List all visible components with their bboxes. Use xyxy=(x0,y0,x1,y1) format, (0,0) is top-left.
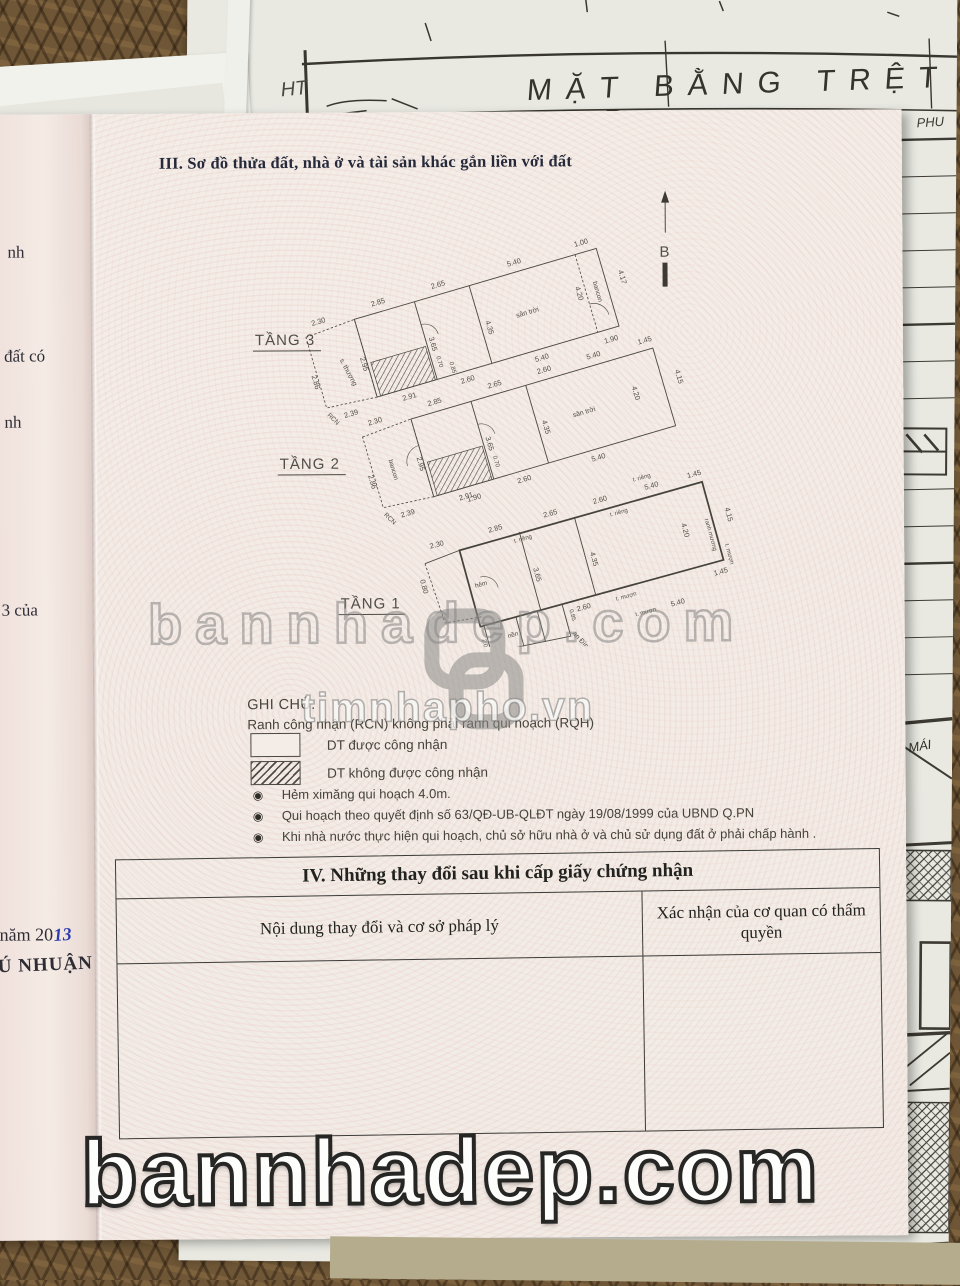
room-label: sân trời xyxy=(515,306,540,319)
legend-swatch-recognized xyxy=(250,733,300,757)
floor-light-strip xyxy=(330,1236,960,1285)
year-handwritten-ink: 13 xyxy=(52,924,72,946)
paper-edge-strip xyxy=(224,0,251,126)
dim-label: 4.35 xyxy=(540,419,553,435)
bullet-icon: ◉ xyxy=(253,809,264,823)
col-header-content: Nội dung thay đổi và cơ sở pháp lý xyxy=(117,892,643,964)
legend-label: DT không được công nhận xyxy=(327,764,488,780)
legend-item-recognized: DT được công nhận xyxy=(250,732,447,757)
dim-label: 2.95 xyxy=(358,356,371,372)
dim-label: 4.20 xyxy=(679,522,691,538)
dim-label: 2.60 xyxy=(459,373,475,386)
dim-label: 2.85 xyxy=(426,396,442,409)
section-iv-table: IV. Những thay đổi sau khi cấp giấy chứn… xyxy=(115,848,884,1139)
blueprint-corner-note: PHU xyxy=(916,114,944,131)
edge-text-fragment: nh xyxy=(7,243,24,263)
legend-swatch-not-recognized xyxy=(251,761,301,785)
edge-text-fragment: nh xyxy=(4,413,21,433)
legend-item-not-recognized: DT không được công nhận xyxy=(251,760,489,785)
dim-label: 1.90 xyxy=(603,333,619,346)
legend-label: DT được công nhận xyxy=(327,737,448,753)
dim-label: 5.40 xyxy=(590,451,606,464)
plan-t3: 2.30 2.85 2.65 5.40 1.00 4.17 4.20 1.90 … xyxy=(294,229,645,431)
dim-label: 1.45 xyxy=(686,468,702,480)
certificate-page: nh đất có nh 3 của năm 2013 Ú NHUẬN III.… xyxy=(0,109,908,1241)
edge-text-fragment: đất có xyxy=(4,346,45,366)
wall-label: t. riêng xyxy=(514,534,533,545)
dim-label: 4.35 xyxy=(483,319,496,335)
alley-label: hẻm xyxy=(474,580,488,590)
dim-label: 2.65 xyxy=(542,507,558,519)
edge-district-fragment: Ú NHUẬN xyxy=(0,953,93,979)
wall-label: ranh mương xyxy=(703,518,718,552)
dim-label: 2.30 xyxy=(310,315,326,328)
dim-label: 4.15 xyxy=(723,506,735,522)
dim-label: 2.30 xyxy=(429,538,445,550)
balcony-label: bancon xyxy=(591,281,604,304)
dim-label: 4.17 xyxy=(616,269,629,285)
dim-label: 5.40 xyxy=(534,351,550,364)
blueprint-hand-note: HT xyxy=(280,77,309,102)
dim-label: 2.85 xyxy=(370,296,386,309)
boundary-label: RCN xyxy=(382,512,397,527)
dim-label: 2.39 xyxy=(343,407,359,420)
room-label: s. thượng xyxy=(338,358,358,388)
empty-cell-confirm xyxy=(642,953,883,1131)
dim-label: 2.30 xyxy=(367,415,383,428)
dim-label: 5.40 xyxy=(506,256,522,269)
dim-label: 2.85 xyxy=(487,522,503,534)
wall-label: t. mượn xyxy=(723,543,734,565)
dim-label: 0.85 xyxy=(448,361,457,374)
north-label: B xyxy=(659,244,670,261)
dim-label: 0.70 xyxy=(434,356,443,369)
dim-label: 4.15 xyxy=(673,368,686,384)
dim-label: 2.86 xyxy=(366,474,379,490)
bullet-icon: ◉ xyxy=(253,788,264,802)
edge-year-fragment: năm 2013 xyxy=(0,924,71,945)
watermark-bottom: bannhadep.com xyxy=(0,1115,908,1228)
legend-note: Hẻm ximăng qui hoạch 4.0m. xyxy=(282,786,451,802)
boundary-label: RCN xyxy=(326,412,341,427)
watermark-site-text: timnhapho.vn xyxy=(0,681,905,734)
dim-label: 2.60 xyxy=(592,493,608,505)
dim-label: 1.00 xyxy=(573,236,589,249)
dim-label: 5.40 xyxy=(585,349,601,362)
col-header-confirm: Xác nhận của cơ quan có thẩm quyền xyxy=(641,888,880,956)
legend-note-row: ◉ Khi nhà nước thực hiện qui hoạch, chủ … xyxy=(253,825,816,846)
legend-note: Khi nhà nước thực hiện qui hoạch, chủ sở… xyxy=(282,826,816,844)
empty-cell-content xyxy=(117,957,645,1139)
floor-label-t3: TẦNG 3 xyxy=(255,332,315,349)
room-label: sân trời xyxy=(572,406,597,419)
dim-label: 5.40 xyxy=(643,479,659,491)
dim-label: 2.65 xyxy=(486,378,502,391)
dim-label: 1.45 xyxy=(713,565,729,577)
dim-label: 2.95 xyxy=(415,456,428,472)
wall-label: t. riêng xyxy=(609,508,628,519)
floor-label-t2: TẦNG 2 xyxy=(280,456,340,473)
section-iv-empty-row xyxy=(117,953,882,1138)
photo-of-land-certificate: { "backdrop": { "blueprint_title": "MẶT … xyxy=(0,0,960,1280)
dim-label: 1.45 xyxy=(636,334,652,347)
dim-label: 0.70 xyxy=(491,455,500,468)
north-arrow: B xyxy=(659,191,671,287)
dim-label: 4.20 xyxy=(630,385,643,401)
dim-label: 2.91 xyxy=(401,390,417,403)
legend-note-row: ◉ Hẻm ximăng qui hoạch 4.0m. xyxy=(253,785,451,804)
dim-label: 2.60 xyxy=(536,363,552,376)
dim-label: 2.65 xyxy=(430,278,446,291)
legend-note-row: ◉ Qui hoạch theo quyết định số 63/QĐ-UB-… xyxy=(253,804,754,825)
legend-note: Qui hoạch theo quyết định số 63/QĐ-UB-QL… xyxy=(282,805,754,823)
dim-label: 2.60 xyxy=(516,473,532,486)
bullet-icon: ◉ xyxy=(253,830,264,844)
dim-label: 4.20 xyxy=(573,285,586,301)
floor-plans-drawing: B TẦNG 3 TẦNG 2 TẦNG 1 2.30 2.85 2.65 5.… xyxy=(82,170,745,649)
year-printed: năm 20 xyxy=(0,924,53,944)
balcony-label: bancon xyxy=(387,459,400,482)
section-iv-header-row: Nội dung thay đổi và cơ sở pháp lý Xác n… xyxy=(117,888,881,964)
dim-label: 2.86 xyxy=(310,374,323,390)
dim-label: 3.65 xyxy=(531,566,543,582)
dim-label: 2.39 xyxy=(400,507,416,520)
dim-label: 4.35 xyxy=(588,551,600,567)
